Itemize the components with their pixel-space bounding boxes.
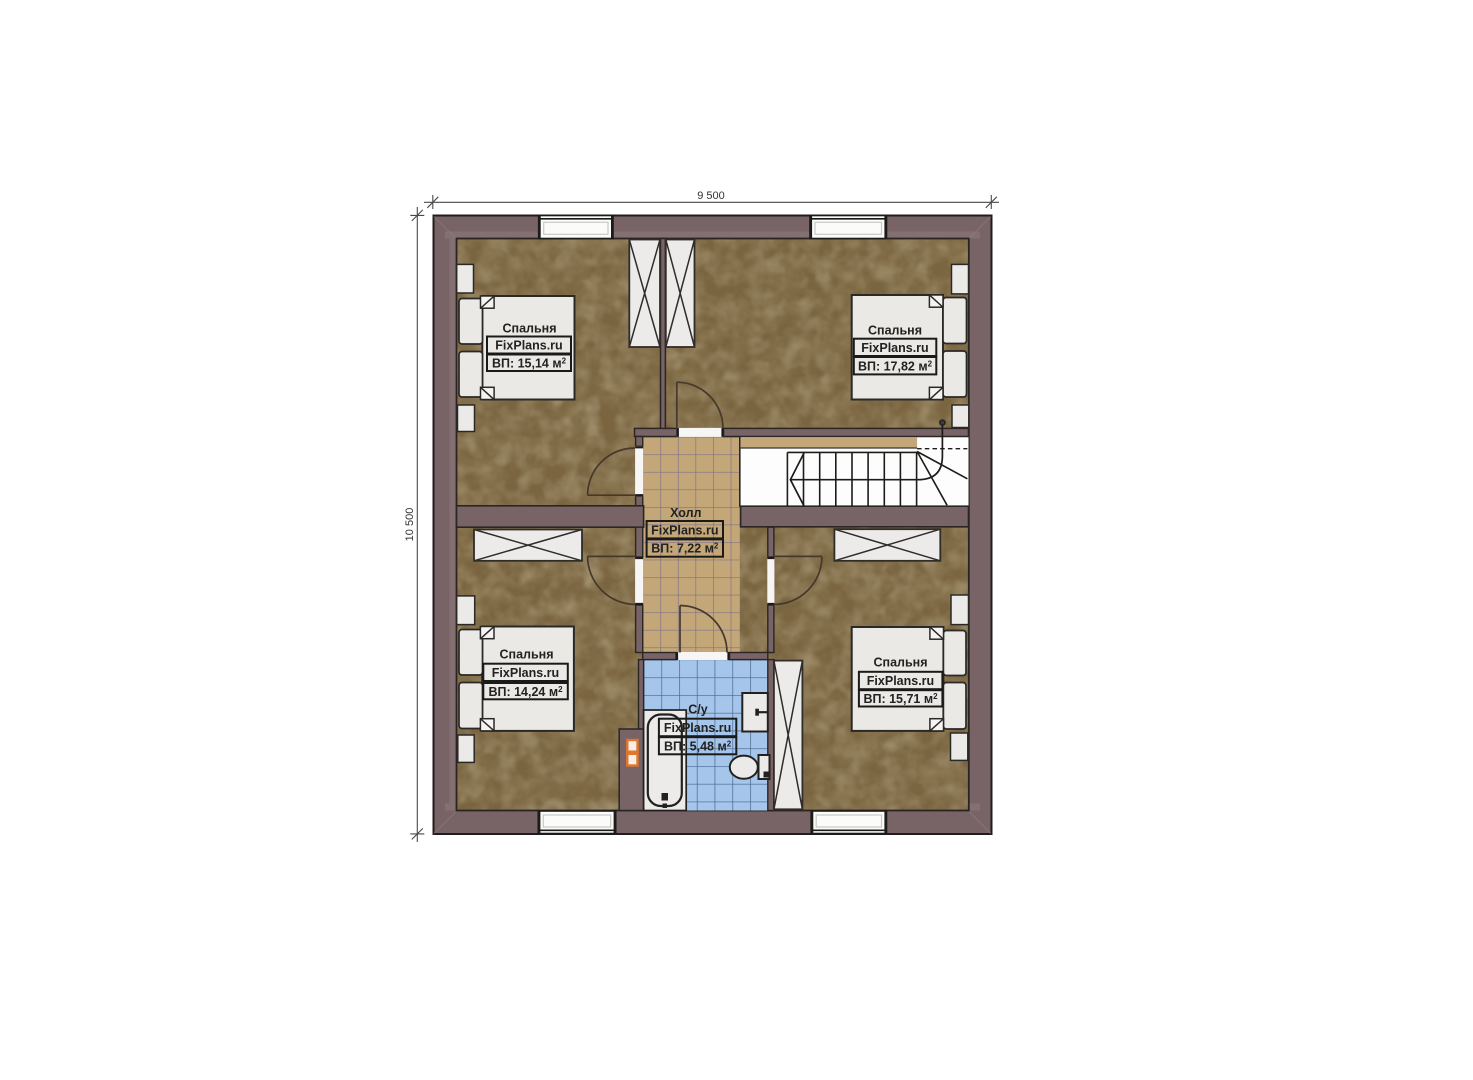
svg-text:Спальня: Спальня bbox=[503, 322, 557, 336]
svg-text:ВП: 17,82 м2: ВП: 17,82 м2 bbox=[858, 360, 933, 374]
svg-text:FixPlans.ru: FixPlans.ru bbox=[867, 674, 934, 688]
svg-text:FixPlans.ru: FixPlans.ru bbox=[664, 721, 731, 735]
svg-text:10 500: 10 500 bbox=[404, 508, 416, 542]
svg-text:ВП: 14,24 м2: ВП: 14,24 м2 bbox=[488, 685, 563, 699]
svg-text:FixPlans.ru: FixPlans.ru bbox=[861, 341, 928, 355]
svg-text:ВП: 15,71 м2: ВП: 15,71 м2 bbox=[863, 692, 938, 706]
svg-text:ВП: 7,22 м2: ВП: 7,22 м2 bbox=[651, 542, 719, 556]
svg-text:FixPlans.ru: FixPlans.ru bbox=[651, 523, 718, 537]
svg-text:Спальня: Спальня bbox=[874, 656, 928, 670]
svg-text:FixPlans.ru: FixPlans.ru bbox=[495, 339, 562, 353]
svg-text:Холл: Холл bbox=[670, 506, 701, 520]
svg-text:FixPlans.ru: FixPlans.ru bbox=[492, 666, 559, 680]
svg-text:С/у: С/у bbox=[688, 703, 708, 717]
svg-text:Спальня: Спальня bbox=[868, 324, 922, 338]
svg-text:Спальня: Спальня bbox=[500, 648, 554, 662]
svg-text:ВП: 15,14 м2: ВП: 15,14 м2 bbox=[492, 357, 567, 371]
svg-text:ВП: 5,48 м2: ВП: 5,48 м2 bbox=[664, 739, 732, 753]
svg-text:9 500: 9 500 bbox=[697, 190, 725, 202]
